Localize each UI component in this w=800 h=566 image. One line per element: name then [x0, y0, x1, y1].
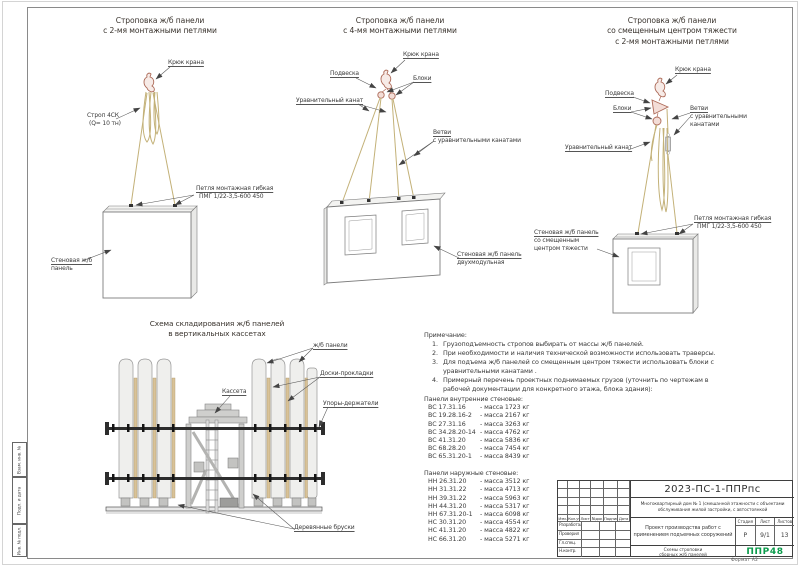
callout-branches-1: Ветви — [433, 129, 451, 137]
callout-loop-2: ПМГ 1/22-3,5-600 450 — [199, 193, 263, 201]
revision-header-row: Изм.Кол.учЛист №докПодписьДата — [558, 515, 630, 522]
title-block: Изм.Кол.учЛист №докПодписьДата Разработа… — [557, 480, 793, 557]
callout-rc-panels: ж/б панели — [313, 342, 347, 350]
callout-loop-1: Петля монтажная гибкая — [196, 185, 273, 193]
callout-wooden-bars: Деревянные бруски — [294, 524, 355, 532]
storage-title: Схема складирования ж/б панелейв вертика… — [139, 319, 295, 339]
callout-panel-1: Стеновая ж/б панель — [534, 229, 598, 237]
callout-sling: Строп 4СК — [87, 112, 119, 120]
sheet-count: 13 — [775, 526, 794, 545]
list-item: ВС 68.28.20- масса 7454 кг — [424, 445, 529, 453]
callout-cassette: Кассета — [222, 388, 246, 396]
signature-row: Гл.спец. — [558, 540, 630, 549]
list-item: ВС 41.31.20- масса 5836 кг — [424, 437, 529, 445]
list-item: ВС 65.31.20-1- масса 8439 кг — [424, 453, 529, 461]
sheet-title: Схемы строповкисборных ж/б панелей — [631, 546, 736, 557]
callout-spacer-boards: Доски-прокладки — [320, 370, 373, 378]
inner-panels-list: Панели внутренние стеновые: ВС 17.31.16-… — [424, 396, 529, 462]
callout-holder-stops: Упоры-держатели — [323, 400, 378, 408]
strip-vzam-inv: Взам. инв. № — [12, 442, 27, 477]
stage-value: Р — [736, 526, 756, 545]
drawing-sheet: Строповка ж/б панелис 2-мя монтажными пе… — [0, 0, 800, 566]
callout-sling-capacity: (Q= 10 тн) — [89, 120, 121, 128]
list-heading: Панели наружные стеновые: — [424, 470, 529, 478]
callout-panel-2: панель — [51, 265, 73, 273]
list-item: НН 31.31.22- масса 4713 кг — [424, 486, 529, 494]
revision-grid — [558, 481, 630, 515]
diagram3-title: Строповка ж/б панелисо смещенным центром… — [590, 16, 754, 47]
outer-panels-list: Панели наружные стеновые: НН 26.31.20- м… — [424, 470, 529, 544]
list-item: НН 26.31.20- масса 3512 кг — [424, 478, 529, 486]
callout-branches-1: Ветви — [690, 105, 708, 113]
list-heading: Панели внутренние стеновые: — [424, 396, 529, 404]
callout-suspension: Подвеска — [605, 90, 634, 98]
callout-panel-1: Стеновая ж/б панель — [457, 251, 521, 259]
callout-panel-2: со смещенным — [534, 237, 579, 245]
list-item: НС 30.31.20- масса 4554 кг — [424, 519, 529, 527]
object-description: Многоквартирный дом № 1 (смешанной этажн… — [631, 498, 794, 518]
callout-crane-hook: Крюк крана — [168, 59, 204, 67]
list-item: ВС 27.31.16- масса 3263 кг — [424, 421, 529, 429]
callout-blocks: Блоки — [413, 75, 431, 83]
title-block-revisions: Изм.Кол.учЛист №докПодписьДата Разработа… — [558, 481, 631, 556]
callout-blocks: Блоки — [613, 105, 631, 113]
notes-block: Примечание: 1. Грузоподъемность стропов … — [424, 331, 734, 394]
callout-panel-3: центром тяжести — [534, 245, 588, 253]
list-item: НС 41.31.20- масса 4822 кг — [424, 527, 529, 535]
sheet-number: 9/1 — [756, 526, 776, 545]
note-item: 3. Для подъема ж/б панелей со смещенным … — [424, 358, 734, 376]
callout-equalizing-rope: Уравнительный канат — [565, 144, 632, 152]
list-item: ВС 19.28.16-2- масса 2167 кг — [424, 412, 529, 420]
notes-heading: Примечание: — [424, 331, 734, 340]
format-label: Формат А2 — [731, 558, 758, 563]
note-item: 1. Грузоподъемность стропов выбирать от … — [424, 340, 734, 349]
document-number: 2023-ПС-1-ППРпс — [631, 481, 794, 498]
signature-row: Проверил — [558, 531, 630, 540]
list-item: ВС 17.31.16- масса 1723 кг — [424, 404, 529, 412]
callout-suspension: Подвеска — [330, 70, 359, 78]
callout-panel-1: Стеновая ж/б — [51, 257, 92, 265]
ppr48-logo: ППР48 — [736, 546, 794, 557]
list-item: НН 67.31.20-1- масса 6098 кг — [424, 511, 529, 519]
callout-equalizing-rope: Уравнительный канат — [296, 97, 363, 105]
stage-sheet-cells: СтадияЛистЛистов Р 9/1 13 — [736, 518, 794, 545]
callout-branches-3: канатами — [690, 121, 719, 129]
strip-inv-podl: Инв. № подл. — [12, 524, 27, 557]
callout-loop-2: ПМГ 1/22-3,5-600 450 — [697, 223, 761, 231]
callout-panel-2: двухмодульная — [457, 259, 504, 267]
diagram2-title: Строповка ж/б панелис 4-мя монтажными пе… — [318, 16, 482, 37]
callout-loop-1: Петля монтажная гибкая — [694, 215, 771, 223]
list-item: НН 44.31.20- масса 5317 кг — [424, 503, 529, 511]
note-item: 2. При необходимости и наличия техническ… — [424, 349, 734, 358]
signature-row: Н.контр. — [558, 548, 630, 557]
callout-crane-hook: Крюк крана — [675, 66, 711, 74]
list-item: НС 66.31.20- масса 5271 кг — [424, 536, 529, 544]
diagram1-title: Строповка ж/б панелис 2-мя монтажными пе… — [78, 16, 242, 37]
project-name: Проект производства работ сприменением п… — [631, 518, 736, 545]
callout-branches-2: с уравнительными — [690, 113, 747, 121]
callout-branches-2: с уравнительными канатами — [433, 137, 521, 145]
list-item: НН 39.31.22- масса 5963 кг — [424, 495, 529, 503]
strip-podp-data: Подп. и дата — [12, 477, 27, 524]
list-item: ВС 34.28.20-14- масса 4762 кг — [424, 429, 529, 437]
title-block-main: 2023-ПС-1-ППРпс Многоквартирный дом № 1 … — [631, 481, 794, 556]
note-item: 4. Примерный перечень проектных поднимае… — [424, 376, 734, 394]
callout-crane-hook: Крюк крана — [403, 51, 439, 59]
signature-row: Разработал — [558, 522, 630, 531]
